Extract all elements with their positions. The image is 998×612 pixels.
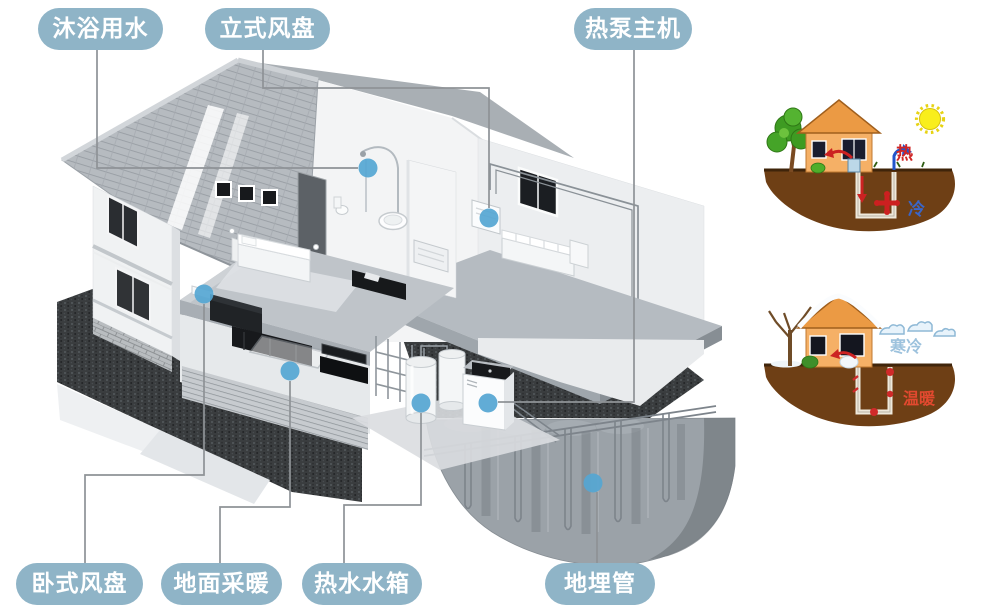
small-window [239, 186, 254, 201]
small-window [262, 190, 277, 205]
dot-vertical-fan-coil [480, 209, 499, 228]
dot-heat-pump [479, 394, 498, 413]
bedside-lamp [230, 229, 235, 234]
summer-cold-label: 冷 [908, 199, 925, 220]
summer-tree [767, 108, 811, 172]
interior-door [298, 172, 326, 258]
shrub [802, 356, 818, 368]
small-window [216, 182, 231, 197]
dot-horizontal-fan-coil [195, 285, 214, 304]
dot-buried-pipe [584, 474, 603, 493]
illustration: 热 冷 [0, 0, 998, 612]
callout-horizontal-fan-coil: 卧式风盘 [16, 563, 143, 605]
dot-hot-water-tank [412, 394, 431, 413]
winter-mini-diagram: 寒冷 温暖 [764, 295, 955, 426]
snow-clouds-icon [880, 322, 955, 336]
shower-head [360, 151, 366, 157]
callout-floor-heating: 地面采暖 [161, 563, 282, 605]
indoor-unit [848, 159, 860, 172]
hot-water-tank-2 [439, 350, 465, 411]
shrub [811, 163, 825, 173]
bedside-lamp [314, 245, 319, 250]
callout-buried-pipe: 地埋管 [545, 563, 655, 605]
summer-house [798, 100, 880, 173]
summer-hot-label: 热 [896, 143, 913, 164]
winter-cold-label: 寒冷 [889, 337, 922, 356]
sun-icon [920, 109, 941, 130]
dot-bathing-water [359, 159, 378, 178]
house-window [810, 336, 826, 355]
diagram-canvas: 热 冷 [0, 0, 998, 612]
snow-patch [771, 361, 801, 368]
callout-vertical-fan-coil: 立式风盘 [205, 8, 330, 50]
callout-bathing-water: 沐浴用水 [38, 8, 163, 50]
bathroom-divider-wall [408, 160, 456, 298]
pump-symbol [886, 368, 894, 376]
callout-hot-water-tank: 热水水箱 [302, 563, 422, 605]
winter-warm-label: 温暖 [902, 389, 936, 408]
summer-mini-diagram: 热 冷 [764, 100, 955, 231]
callout-heat-pump-unit: 热泵主机 [574, 8, 692, 50]
pump-symbol [870, 408, 878, 416]
pump-symbol [887, 391, 893, 397]
bed-headboard [570, 240, 588, 268]
dot-floor-heating [281, 362, 300, 381]
house-window [812, 141, 826, 158]
